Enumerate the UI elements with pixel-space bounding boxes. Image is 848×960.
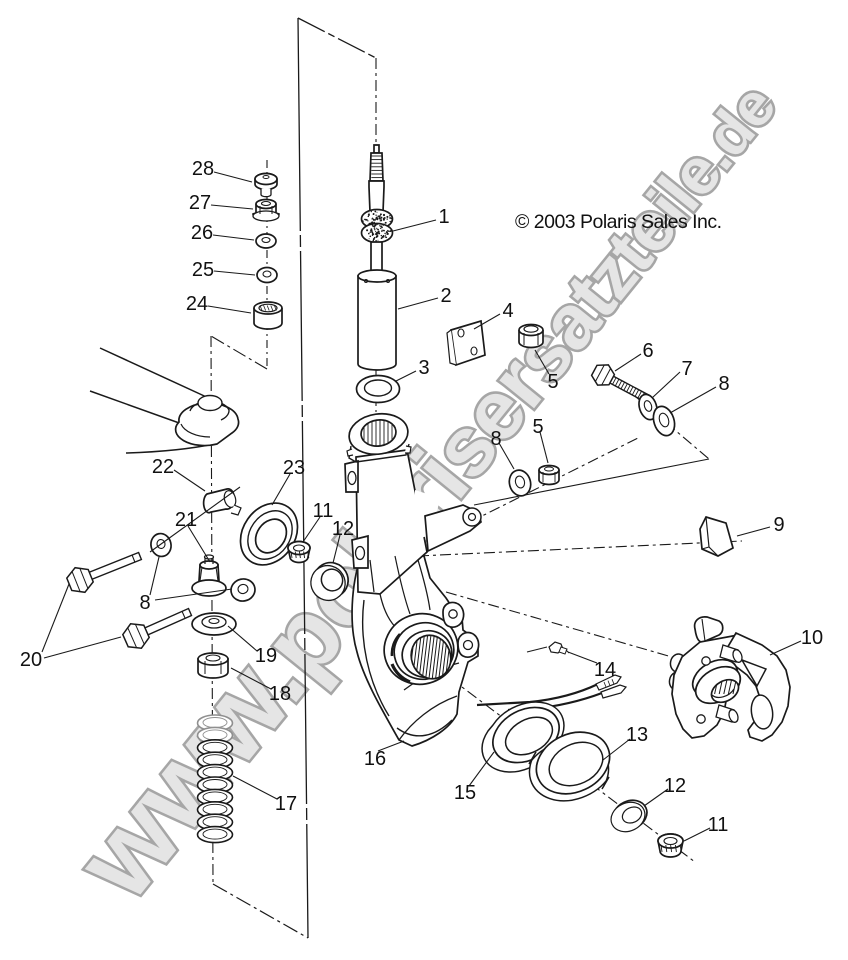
- svg-text:4: 4: [502, 300, 513, 322]
- svg-text:8: 8: [139, 592, 150, 614]
- svg-text:3: 3: [418, 357, 429, 379]
- svg-text:6: 6: [642, 340, 653, 362]
- svg-text:25: 25: [192, 259, 214, 281]
- svg-text:12: 12: [664, 775, 686, 797]
- svg-text:27: 27: [189, 192, 211, 214]
- svg-text:8: 8: [490, 428, 501, 450]
- svg-text:5: 5: [532, 416, 543, 438]
- svg-text:5: 5: [547, 371, 558, 393]
- svg-text:21: 21: [175, 509, 197, 531]
- svg-text:23: 23: [283, 457, 305, 479]
- svg-text:19: 19: [255, 645, 277, 667]
- svg-text:9: 9: [773, 514, 784, 536]
- svg-text:14: 14: [594, 659, 616, 681]
- svg-text:20: 20: [20, 649, 42, 671]
- svg-text:28: 28: [192, 158, 214, 180]
- svg-text:1: 1: [438, 206, 449, 228]
- svg-text:© 2003 Polaris Sales Inc.: © 2003 Polaris Sales Inc.: [515, 211, 722, 233]
- svg-text:18: 18: [269, 683, 291, 705]
- svg-text:24: 24: [186, 293, 208, 315]
- svg-text:2: 2: [440, 285, 451, 307]
- svg-text:11: 11: [708, 814, 729, 836]
- svg-text:12: 12: [332, 518, 354, 540]
- svg-text:10: 10: [801, 627, 823, 649]
- svg-text:7: 7: [681, 358, 692, 380]
- svg-text:16: 16: [364, 748, 386, 770]
- svg-text:22: 22: [152, 456, 174, 478]
- svg-text:13: 13: [626, 724, 648, 746]
- svg-text:26: 26: [191, 222, 213, 244]
- svg-text:11: 11: [313, 500, 334, 522]
- svg-text:15: 15: [454, 782, 476, 804]
- svg-text:8: 8: [718, 373, 729, 395]
- svg-text:17: 17: [275, 793, 297, 815]
